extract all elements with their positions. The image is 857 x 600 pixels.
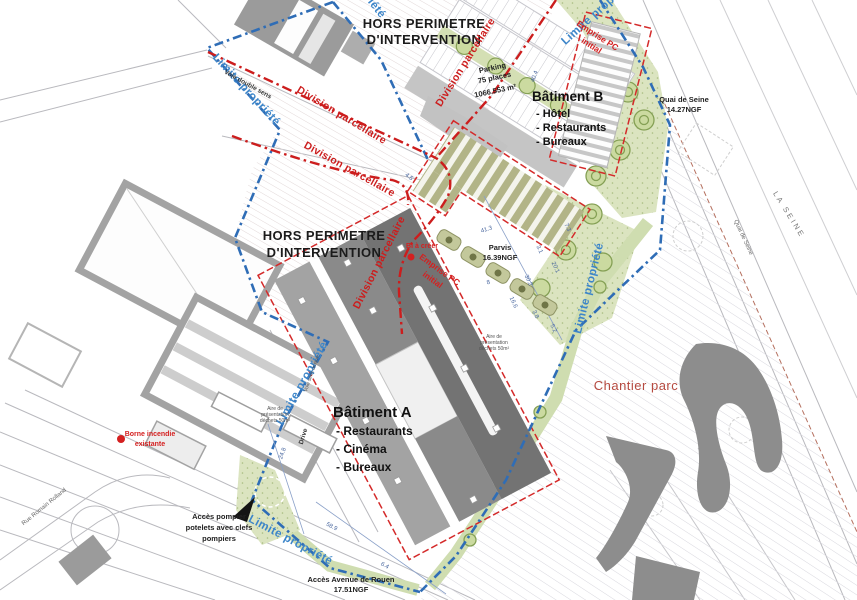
avenue-line — [0, 530, 215, 600]
dim-41-3: 41.3 — [480, 225, 494, 235]
hors-perimetre-nord-line2: D'INTERVENTION — [367, 32, 482, 47]
parvis-label-line1: Parvis — [489, 243, 512, 252]
hors-perimetre-ouest-line2: D'INTERVENTION — [267, 245, 382, 260]
dim-16-6: 16.6 — [508, 296, 519, 310]
borne-incendie-line1: Borne incendie — [125, 431, 176, 438]
hors-perimetre-ouest-line1: HORS PERIMETRE — [263, 228, 386, 243]
dim-3-1: 3.1 — [534, 245, 543, 256]
batiment-a-item-1: - Cinéma — [336, 442, 387, 456]
la-seine-label: LA SEINE — [771, 190, 807, 240]
acces-pompier-line1: Accès pompier — [192, 512, 246, 521]
quai-ngf-line1: Quai de Seine — [659, 95, 709, 104]
batiment-b-title: Bâtiment B — [532, 89, 604, 104]
road-edge — [178, 0, 226, 48]
hydrant-new-dot — [408, 254, 415, 261]
chantier-parc-label: Chantier parc — [594, 378, 679, 393]
bi-a-creer-label: BI à créer — [406, 243, 438, 250]
acces-pompier-line3: pompiers — [202, 534, 236, 543]
batiment-a-item-0: - Restaurants — [336, 424, 413, 438]
borne-incendie-line2: existante — [135, 441, 165, 448]
dim-6-4: 6.4 — [379, 562, 390, 572]
acces-avenue-line2: 17.51NGF — [334, 585, 369, 594]
quai-ngf-line2: 14.27NGF — [667, 105, 702, 114]
road-edge — [0, 68, 212, 122]
quai-de-seine-street-label: Quai de Seine — [732, 219, 754, 257]
site-plan: HORS PERIMETRE D'INTERVENTION HORS PERIM… — [0, 0, 857, 600]
parvis-label-line2: 16.39NGF — [483, 253, 518, 262]
batiment-b-item-0: - Hôtel — [536, 108, 570, 120]
acces-avenue-line1: Accès Avenue de Rouen — [308, 575, 395, 584]
small-building-south — [58, 535, 111, 586]
batiment-b-item-2: - Bureaux — [536, 136, 588, 148]
acces-pompier-line2: potelets avec clefs — [186, 523, 253, 532]
site-plan-svg: HORS PERIMETRE D'INTERVENTION HORS PERIM… — [0, 0, 857, 600]
dim-8: 8 — [486, 279, 492, 286]
quai-line — [812, 0, 857, 95]
small-building-west — [9, 323, 81, 386]
aire-1-line3: déchets 50m² — [260, 418, 291, 424]
batiment-a-title: Bâtiment A — [333, 404, 412, 421]
quai-line — [768, 0, 857, 190]
batiment-a-item-2: - Bureaux — [336, 460, 392, 474]
aire-2-line3: déchets 50m² — [479, 346, 510, 352]
batiment-b-item-1: - Restaurants — [536, 122, 606, 134]
road-edge — [0, 50, 207, 100]
